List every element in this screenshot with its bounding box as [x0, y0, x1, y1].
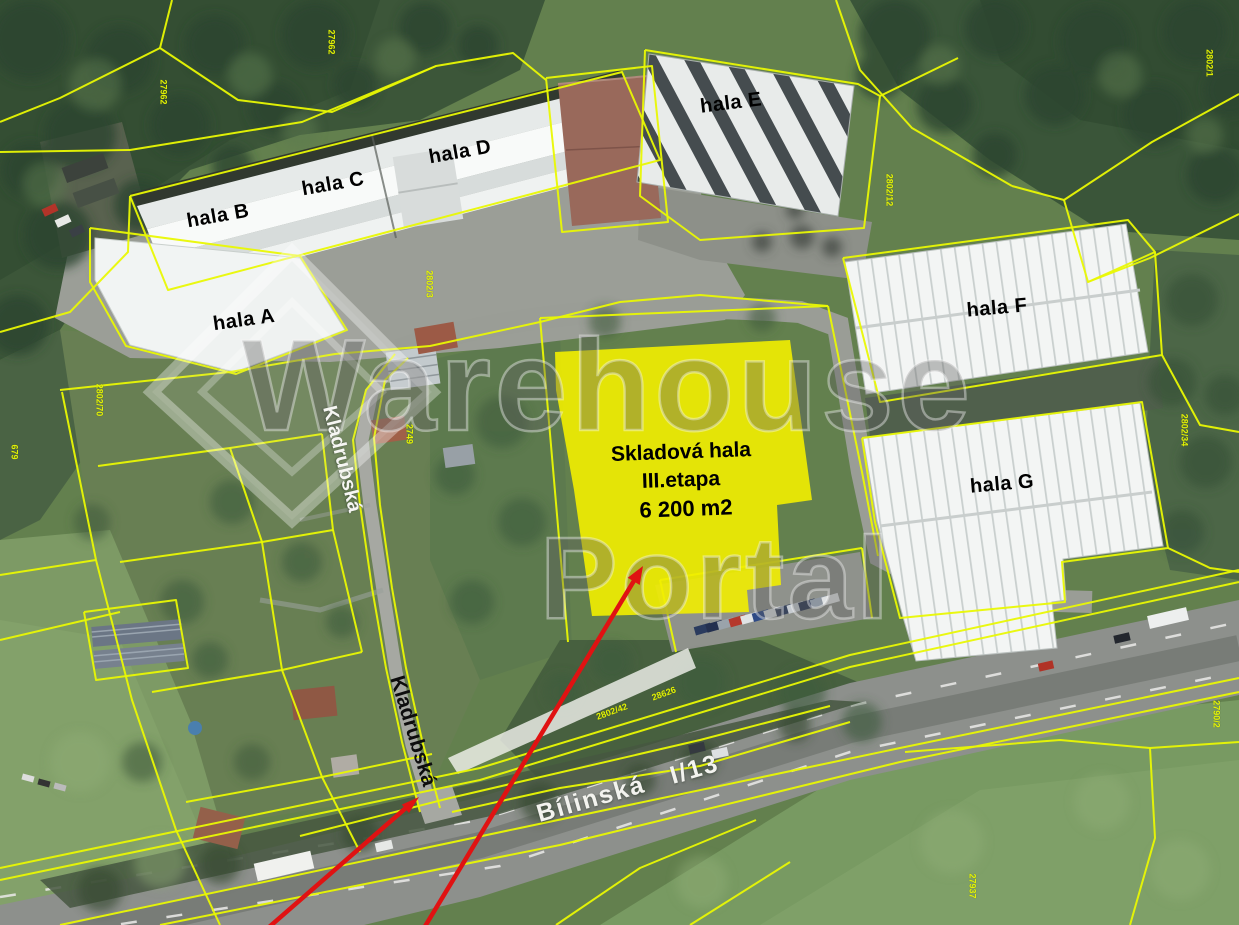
watermark-word1: Warehouse — [242, 312, 974, 458]
pool — [188, 721, 202, 735]
aerial-map: Warehouse Portal hala A hala B hala C ha… — [0, 0, 1239, 925]
aerial-photo-layer: Warehouse Portal — [0, 0, 1239, 925]
watermark-word2: Portal — [540, 513, 893, 643]
